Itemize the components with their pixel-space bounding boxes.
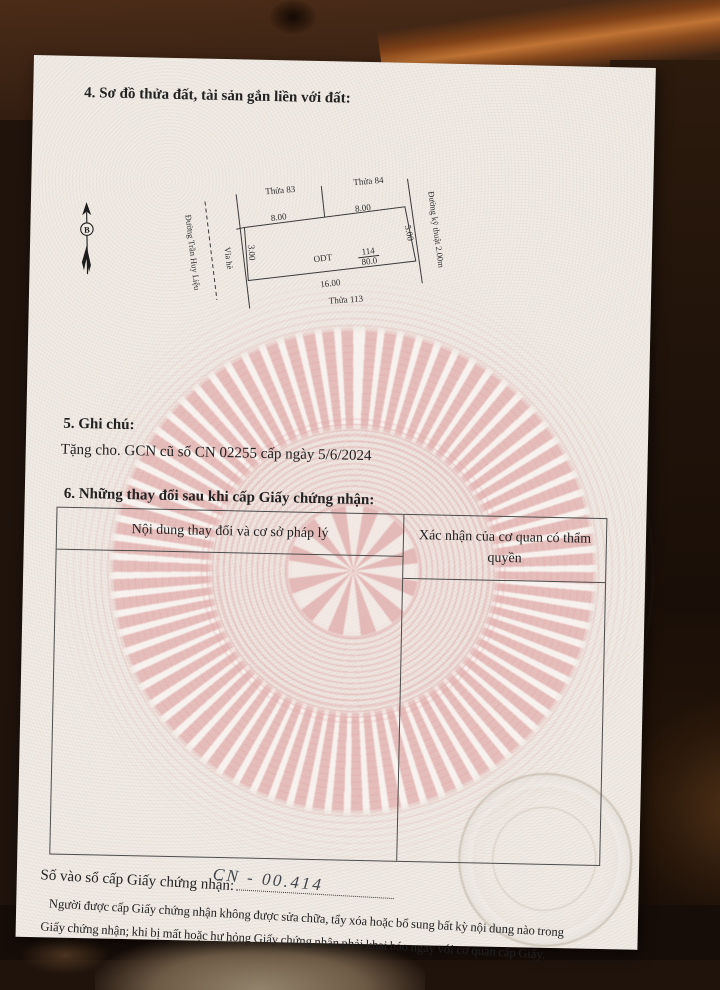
street-dashed-line	[203, 202, 219, 300]
length-left: 3.00	[246, 244, 257, 260]
parcel-diagram: Đường Trần Huy Liệu Vỉa hè Đường kỹ thuậ…	[178, 163, 441, 326]
col2-body-empty	[397, 579, 605, 865]
photo-scene: 4. Sơ đồ thửa đất, tài sản gắn liền với …	[0, 0, 720, 960]
north-arrow-shaft	[87, 212, 88, 274]
col1-body-empty	[50, 550, 402, 861]
length-top-left: 8.00	[270, 211, 287, 223]
certificate-page: 4. Sơ đồ thửa đất, tài sản gắn liền với …	[16, 55, 656, 950]
section5-heading: 5. Ghi chú:	[63, 416, 135, 434]
section5-note: Tặng cho. GCN cũ số CN 02255 cấp ngày 5/…	[61, 442, 372, 466]
length-top-right: 8.00	[354, 202, 371, 214]
parcel-area: 80.0	[361, 256, 378, 268]
registry-label: Số vào sổ cấp Giấy chứng nhận:	[40, 867, 235, 894]
north-arrow: B	[78, 202, 97, 283]
changes-table: Nội dung thay đổi và cơ sở pháp lý Xác n…	[49, 507, 607, 866]
page-content: 4. Sơ đồ thửa đất, tài sản gắn liền với …	[16, 55, 656, 950]
section6-heading: 6. Những thay đổi sau khi cấp Giấy chứng…	[64, 486, 375, 510]
section4-heading: 4. Sơ đồ thửa đất, tài sản gắn liền với …	[84, 85, 351, 108]
parcel-outline	[243, 203, 417, 284]
north-letter: B	[84, 225, 90, 235]
wood-reflection-small	[20, 935, 110, 975]
changes-table-col2: Xác nhận của cơ quan có thẩm quyền	[397, 515, 606, 865]
top-boundary-tick	[321, 186, 326, 217]
parcel-fraction: 11480.0	[357, 246, 380, 268]
wood-knot	[270, 0, 316, 34]
col2-header: Xác nhận của cơ quan có thẩm quyền	[403, 515, 606, 583]
changes-table-col1: Nội dung thay đổi và cơ sở pháp lý	[50, 508, 404, 861]
col1-header: Nội dung thay đổi và cơ sở pháp lý	[57, 508, 404, 557]
